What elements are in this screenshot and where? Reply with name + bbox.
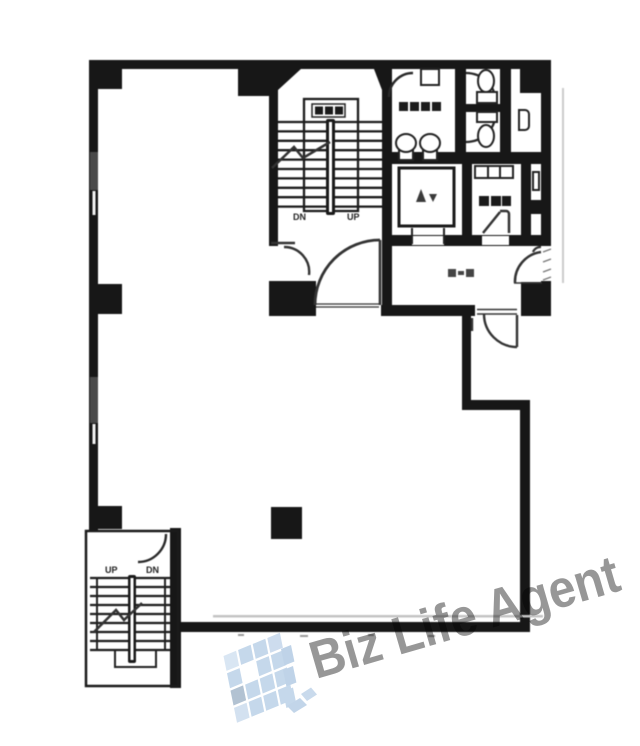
svg-text:Biz Life Agent: Biz Life Agent [303,544,627,690]
